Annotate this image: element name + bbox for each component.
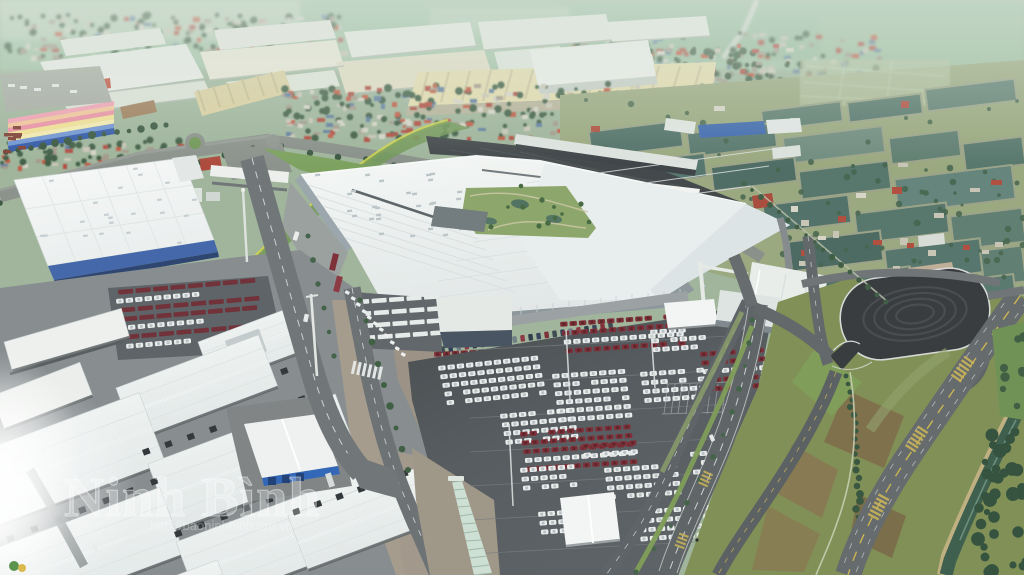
svg-text:http://baoninhbinh.org.vn: http://baoninhbinh.org.vn xyxy=(150,518,293,533)
